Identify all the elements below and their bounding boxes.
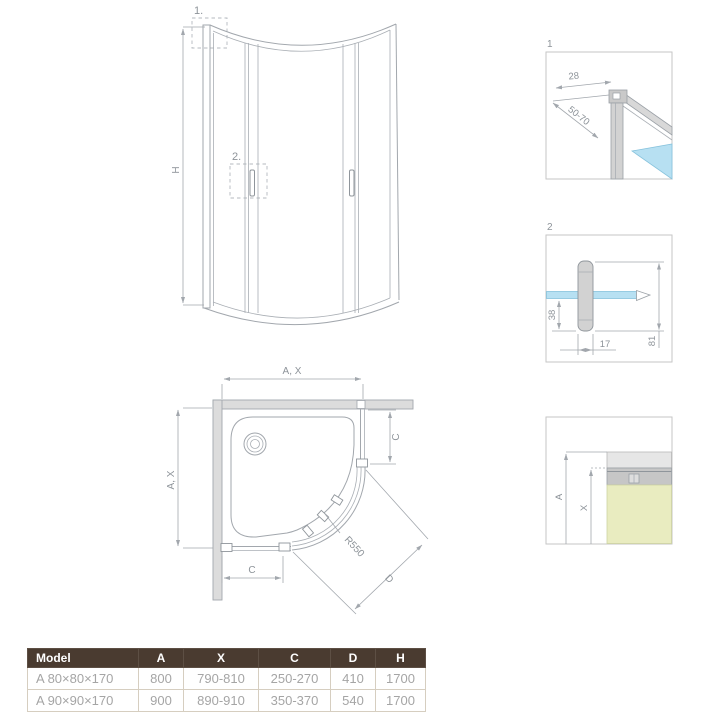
col-header-d: D (331, 649, 376, 668)
model-cell: A 90×90×170 (28, 690, 139, 712)
value-cell: 250-270 (259, 668, 331, 690)
callout-1-label: 1. (194, 5, 203, 17)
plan-view: A, X A, X (166, 366, 428, 614)
value-cell: 800 (139, 668, 184, 690)
dim-width-top-label: A, X (283, 366, 302, 377)
dim-diagonal-label: D (382, 573, 395, 586)
dim-h-label: H (171, 166, 182, 173)
dim-depth-left-label: A, X (166, 470, 177, 489)
value-cell: 1700 (376, 668, 426, 690)
fixed-panel-right (357, 409, 368, 467)
dim-c-right-label: C (391, 433, 402, 440)
door-rollers (302, 495, 342, 537)
right-door-handle (350, 170, 355, 196)
left-wall-profile (203, 25, 210, 308)
top-rail-inner (213, 30, 390, 51)
model-cell: A 80×80×170 (28, 668, 139, 690)
drain-circle (244, 433, 266, 455)
detail-2: 2 38 17 81 (546, 222, 672, 362)
radius-callout: R550 (325, 514, 366, 560)
dim-17-label: 17 (600, 339, 611, 350)
col-header-c: C (259, 649, 331, 668)
dim-c-bottom: C (222, 556, 283, 583)
value-cell: 1700 (376, 690, 426, 712)
value-cell: 890-910 (184, 690, 259, 712)
technical-drawing: H 1. 2. (0, 0, 720, 645)
table-header-row: Model A X C D H (28, 649, 426, 668)
plan-wall-left (213, 400, 222, 600)
bottom-rail-outer (204, 302, 399, 325)
table-row: A 90×90×170 900 890-910 350-370 540 1700 (28, 690, 426, 712)
wall-panel-notch (357, 401, 365, 409)
dim-28-label: 28 (568, 71, 579, 83)
dim-width-top: A, X (222, 366, 363, 399)
detail-1: 1 28 50-70 (546, 39, 672, 179)
detail-3: A X (546, 417, 672, 544)
dim-x-label: X (579, 504, 590, 511)
top-rail-outer (210, 24, 396, 45)
value-cell: 540 (331, 690, 376, 712)
value-cell: 410 (331, 668, 376, 690)
plan-wall-top (213, 400, 413, 409)
value-cell: 900 (139, 690, 184, 712)
front-view: H 1. 2. (171, 5, 399, 325)
value-cell: 350-370 (259, 690, 331, 712)
dim-38-label: 38 (547, 310, 558, 321)
col-header-h: H (376, 649, 426, 668)
dim-a-label: A (554, 493, 565, 500)
value-cell: 790-810 (184, 668, 259, 690)
handle-profile (578, 261, 593, 331)
col-header-x: X (184, 649, 259, 668)
dim-height-h: H (171, 27, 205, 305)
detail-1-number: 1 (547, 39, 553, 50)
shower-enclosure-spec-sheet: H 1. 2. (0, 0, 720, 720)
callout-2-label: 2. (232, 151, 241, 163)
door-stiles (245, 43, 359, 313)
col-header-model: Model (28, 649, 139, 668)
table-row: A 80×80×170 800 790-810 250-270 410 1700 (28, 668, 426, 690)
fixed-panel-bottom (221, 543, 291, 552)
dim-81-label: 81 (647, 336, 658, 347)
wall-profile-bar (611, 103, 623, 179)
dim-c-right: C (368, 410, 402, 464)
radius-label: R550 (342, 535, 367, 560)
dim-diagonal-d: D (293, 470, 428, 614)
wall-band (607, 452, 672, 468)
detail-2-number: 2 (547, 222, 553, 233)
dim-c-bottom-label: C (248, 565, 255, 576)
left-door-handle (250, 170, 255, 196)
spec-table: Model A X C D H A 80×80×170 800 790-810 … (27, 648, 426, 712)
col-header-a: A (139, 649, 184, 668)
tray-section (607, 485, 672, 544)
